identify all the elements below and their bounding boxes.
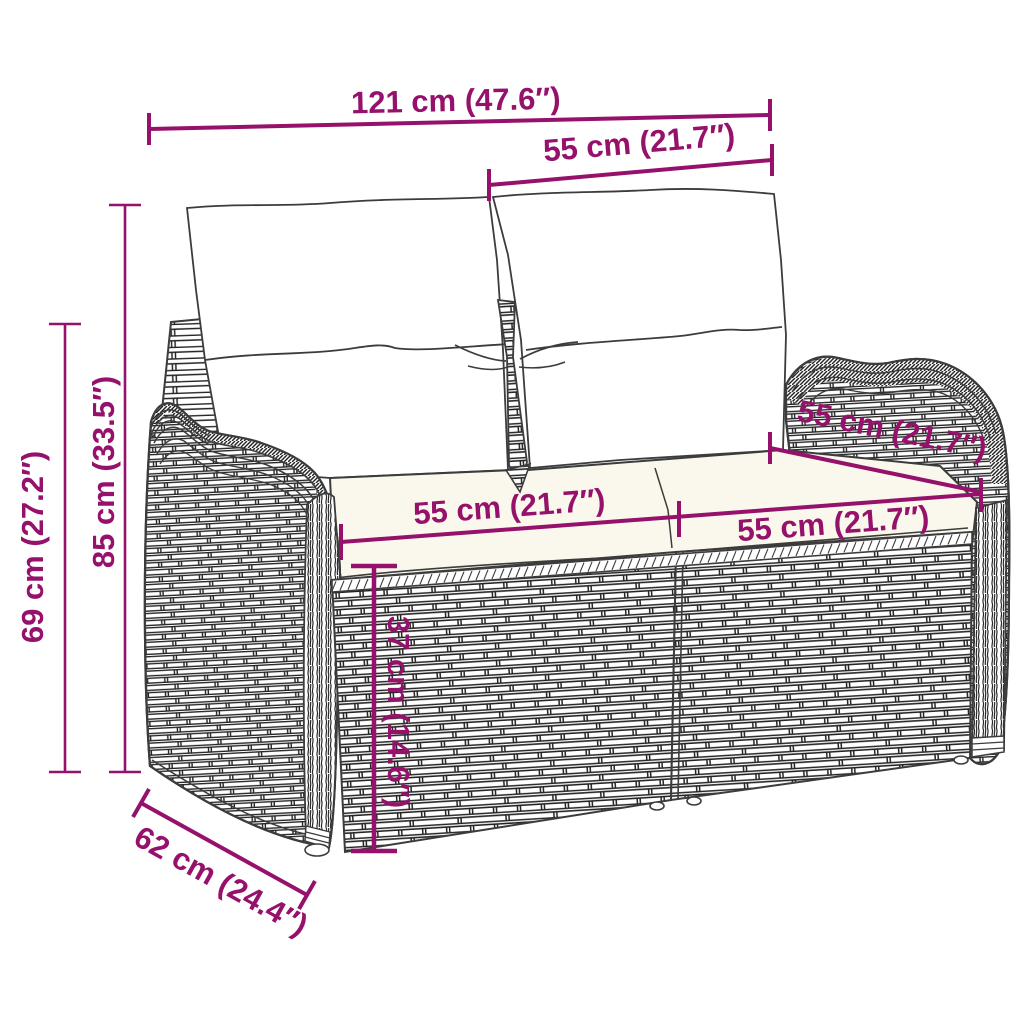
svg-text:85 cm (33.5″): 85 cm (33.5″) (86, 376, 121, 568)
svg-text:121 cm (47.6″): 121 cm (47.6″) (351, 81, 561, 121)
svg-text:37 cm (14.6″): 37 cm (14.6″) (381, 616, 416, 808)
svg-text:69 cm (27.2″): 69 cm (27.2″) (15, 451, 50, 643)
